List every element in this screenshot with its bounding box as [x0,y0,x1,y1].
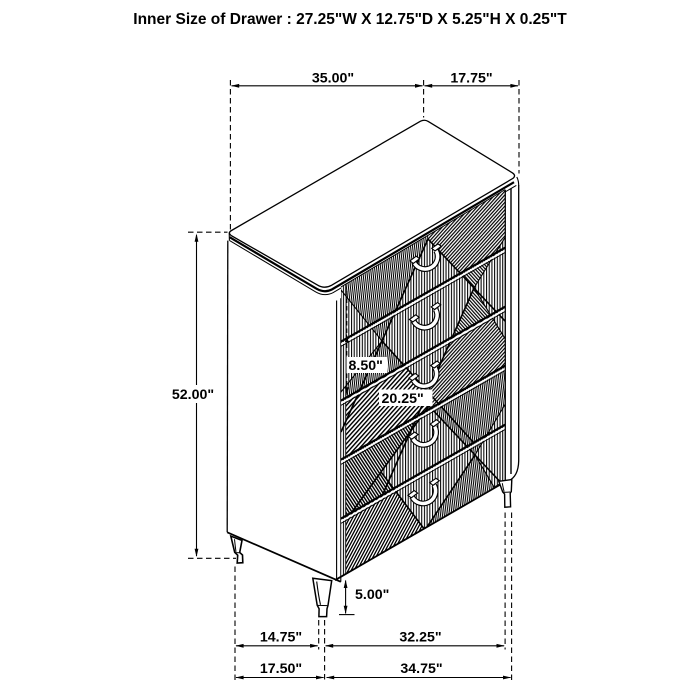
svg-text:17.75": 17.75" [450,71,492,87]
svg-text:32.25": 32.25" [399,630,441,646]
svg-text:Inner Size of Drawer : 27.25"W: Inner Size of Drawer : 27.25"W X 12.75"D… [133,11,567,28]
svg-text:34.75": 34.75" [400,661,442,677]
svg-text:35.00": 35.00" [312,71,354,87]
svg-text:5.00": 5.00" [355,587,389,603]
svg-text:52.00": 52.00" [172,387,214,403]
svg-text:8.50": 8.50" [349,358,383,374]
svg-text:20.25": 20.25" [382,391,424,407]
svg-text:14.75": 14.75" [260,630,302,646]
svg-text:17.50": 17.50" [260,661,302,677]
